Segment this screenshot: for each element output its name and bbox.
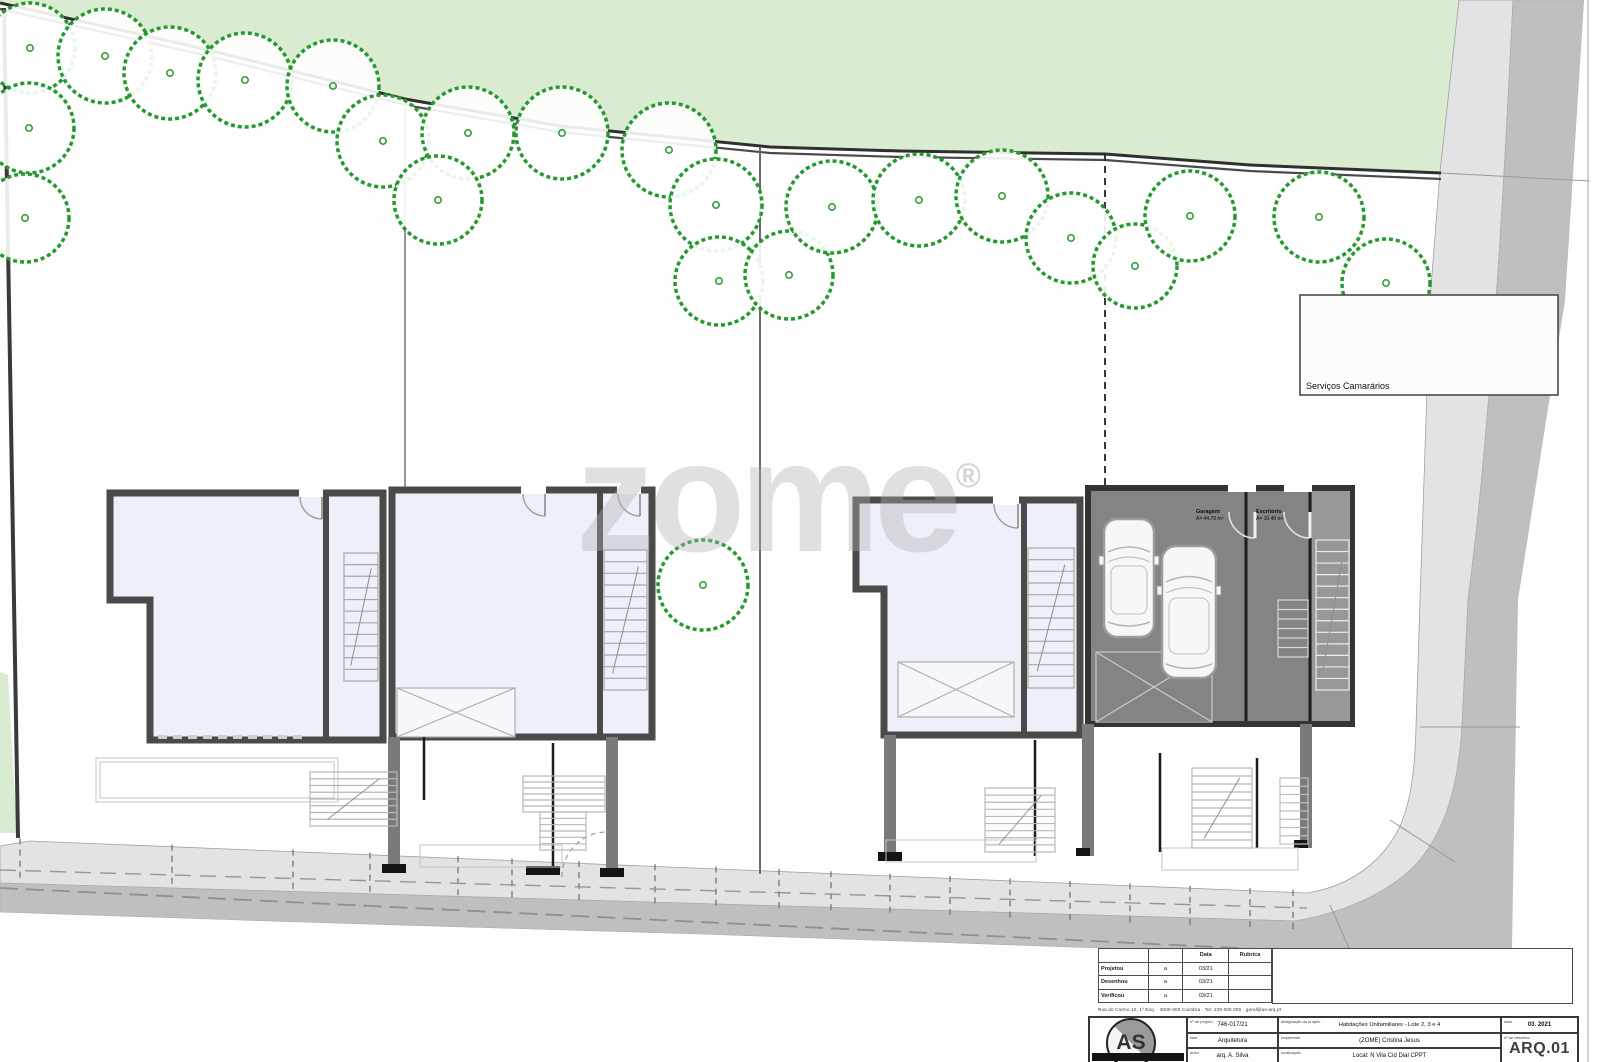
garage-door-gap-1	[1228, 484, 1256, 492]
lot4-door-gap	[993, 496, 1019, 505]
lot3-door-gap-1	[521, 486, 546, 494]
rev-col-rubrica: Rubrica	[1229, 949, 1272, 963]
garage-room-label: Garagem	[1196, 509, 1220, 515]
author-value: arq. A. Silva	[1188, 1053, 1277, 1059]
phase-value: Arquitetura	[1188, 1038, 1277, 1044]
logo-bar	[1092, 1053, 1184, 1061]
car-1	[1099, 519, 1159, 637]
author-cell: autor arq. A. Silva	[1187, 1048, 1278, 1062]
proj-no-value: 746-017/21	[1188, 1022, 1277, 1028]
proj-no-cell: nº de projeto 746-017/21	[1187, 1017, 1278, 1033]
tree-symbol	[786, 161, 878, 253]
sheet-no-cell: nº de desenho ARQ.01	[1501, 1033, 1578, 1062]
client-value: (ZOME) Cristina Jesus	[1279, 1038, 1500, 1044]
phase-cell: fase Arquitetura	[1187, 1033, 1278, 1048]
location-value: Local: N Vila Cid Dial CPPT	[1279, 1053, 1500, 1059]
lot2-door-gap	[299, 489, 323, 497]
stair-flight	[523, 776, 605, 812]
lot3-void-cross	[397, 688, 515, 737]
garage-block: Garagem A= 44.70 m² Escritório A= 10.40 …	[1088, 484, 1352, 724]
garage-stair-room	[1312, 491, 1350, 721]
tree-symbol	[873, 154, 965, 246]
sheet-number: ARQ.01	[1502, 1040, 1577, 1058]
tree-symbol	[394, 156, 482, 244]
legend-box: Serviços Camarários	[1300, 295, 1558, 395]
office-room-label: Escritório	[1256, 509, 1282, 515]
location-cell: localização Local: N Vila Cid Dial CPPT	[1278, 1048, 1501, 1062]
table-row: Desenhou a 03/21	[1099, 976, 1272, 990]
client-cell: requerente (ZOME) Cristina Jesus	[1278, 1033, 1501, 1048]
lot2-outer-walls	[110, 493, 383, 740]
car-2	[1157, 546, 1221, 678]
office-address-line: Rua do Carmo 12, 1º Esq. · 3000-000 Coim…	[1098, 1007, 1281, 1012]
drawing-sheet: Garagem A= 44.70 m² Escritório A= 10.40 …	[0, 0, 1600, 1062]
tree-symbol	[1145, 171, 1235, 261]
tree-symbol	[516, 87, 608, 179]
building-lot2	[110, 489, 383, 740]
date-cell: data 03. 2021	[1501, 1017, 1578, 1033]
date-value: 03. 2021	[1502, 1022, 1577, 1028]
project-title-cell: designação do projeto Habitações Unifami…	[1278, 1017, 1501, 1033]
garage-room-area: A= 44.70 m²	[1196, 516, 1224, 522]
registered-mark: ®	[956, 457, 981, 495]
revision-table: Data Rubrica Projetou a 03/21 Desenhou a…	[1098, 948, 1272, 1003]
legend-note: Serviços Camarários	[1306, 381, 1390, 391]
tree-symbol	[198, 33, 292, 127]
garage-door-gap-2	[1284, 484, 1312, 492]
table-row: Verificou a 03/21	[1099, 989, 1272, 1003]
zome-watermark: zome®	[576, 418, 981, 576]
office-room-area: A= 10.40 m²	[1256, 516, 1284, 522]
table-row: Projetou a 03/21	[1099, 962, 1272, 976]
rev-col-data: Data	[1183, 949, 1229, 963]
logo-text: AS	[1116, 1031, 1145, 1055]
project-title-value: Habitações Unifamiliares - Lote 2, 3 e 4	[1279, 1022, 1500, 1028]
revision-notes-cell	[1272, 948, 1573, 1004]
tree-symbol	[1274, 172, 1364, 262]
lot4-void-cross	[898, 662, 1014, 717]
